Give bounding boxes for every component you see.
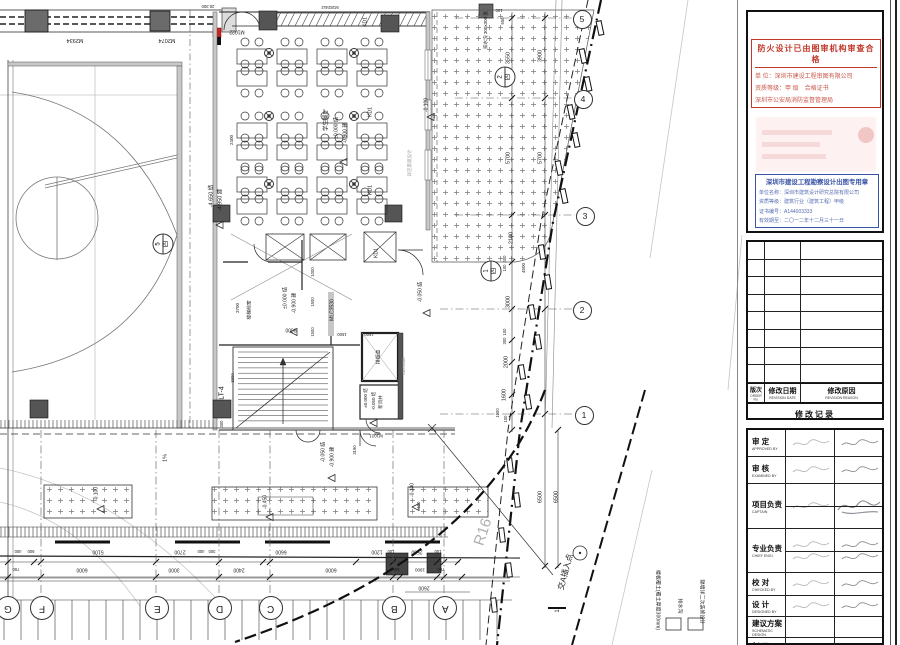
revision-footer-cn: 修改记录 [795,410,835,419]
revision-empty-row [748,295,882,313]
sheet-edge-line [890,0,891,645]
signature-scrawl [840,464,878,476]
signature-sign-cell [834,617,882,637]
faint-lines [0,0,742,645]
signature-scrawl [840,578,878,590]
faint-seal-text [762,142,820,147]
signature-role: 制 图 [748,638,785,645]
shafts [360,333,403,433]
signature-role: 审 核EXAMINED BY [748,457,785,483]
signature-role: 审 定APPROVED BY [748,430,785,456]
signature-role-en: DESIGNED BY [752,610,785,614]
signature-sign-cell [834,457,882,483]
signature-role: 项目负责CAPTAIN [748,484,785,528]
signature-role-cn: 专业负责 [752,543,785,554]
signature-sign-cell [834,529,882,572]
signature-scrawl [791,539,829,551]
paved-plaza [432,10,594,262]
fire-approval-stamp: 防火设计已由图审机构审查合格 单 位：深圳市建设工程审图有限公司 资质等级：甲 … [751,39,881,108]
signature-scrawl [791,551,829,563]
signature-row: 审 核EXAMINED BY [748,457,882,484]
signature-scrawl [791,464,829,476]
signature-scrawl [840,551,878,563]
signature-role-cn: 审 定 [752,436,785,447]
signature-role-cn: 项目负责 [752,499,785,510]
signature-sign-cell [834,430,882,456]
planters [44,485,488,520]
faint-seal-mark [858,127,874,143]
signature-role-cn: 建议方案 [752,618,785,629]
signature-scrawl [840,539,878,551]
signature-scrawl [791,600,829,612]
dining-tables-and-chairs [237,38,387,225]
signature-sign-cell [834,573,882,595]
signature-role: 专业负责CHIEF ENGI. [748,529,785,572]
signature-sign-cell [834,596,882,616]
revision-col-line [800,242,801,383]
revision-col-reason: 修改原因 REVISION REASON [801,384,882,402]
signature-name-cell [785,617,834,637]
signature-row: 制 图 [748,638,882,645]
signature-role: 建议方案SCHEMATIC DESIGN [748,617,785,637]
signature-name-cell [785,529,834,572]
fire-stamp-line: 资质等级：甲 级 合格证书 [755,83,877,92]
signature-role: 设 计DESIGNED BY [748,596,785,616]
drawing-release-stamp: 深圳市建设工程勘察设计出图专用章 单位名称：深圳市建筑设计研究总院有限公司 资质… [755,174,879,228]
signature-row: 专业负责CHIEF ENGI. [748,529,882,573]
blue-stamp-line: 有效期至：二〇一二年十二月三十一日 [759,217,875,224]
stamp-area: 防火设计已由图审机构审查合格 单 位：深圳市建设工程审图有限公司 资质等级：甲 … [746,10,884,233]
cell-divider [835,506,882,507]
revision-header-row: 版次 ORDER No. 修改日期 REVISION DATE 修改原因 REV… [748,383,882,403]
signature-scrawl [791,578,829,590]
revision-empty-row [748,277,882,295]
signature-name-cell [785,484,834,528]
fire-stamp-line: 深圳市公安局消防监督管理局 [755,95,877,104]
signature-name-cell [785,573,834,595]
signature-role-en: APPROVED BY [752,447,785,451]
revision-table: 版次 ORDER No. 修改日期 REVISION DATE 修改原因 REV… [746,240,884,420]
signature-name-cell [785,457,834,483]
revision-col-line [764,242,765,383]
signature-name-cell [785,596,834,616]
faint-seal-text [762,130,832,135]
signature-role-cn: 审 核 [752,463,785,474]
revision-empty-rows [748,242,882,383]
blue-stamp-line: 单位名称：深圳市建筑设计研究总院有限公司 [759,189,875,196]
signature-name-cell [785,430,834,456]
signature-role-en: SCHEMATIC DESIGN [752,629,785,637]
cell-divider [835,551,882,552]
signature-row: 设 计DESIGNED BY [748,596,882,617]
signature-row: 审 定APPROVED BY [748,430,882,457]
revision-empty-row [748,365,882,383]
sheet-edge-line [895,0,897,645]
revision-col-date: 修改日期 REVISION DATE [765,384,801,402]
core-walls [219,240,455,446]
signature-name-cell [785,638,834,645]
signature-role-cn: 设 计 [752,599,785,610]
signature-role-en: CAPTAIN [752,510,785,514]
signature-row: 建议方案SCHEMATIC DESIGN [748,617,882,638]
signature-row: 校 对CHECKED BY [748,573,882,596]
revision-empty-row [748,348,882,366]
revision-empty-row [748,312,882,330]
revision-col-order: 版次 ORDER No. [748,384,765,402]
legend-swatches [666,618,703,630]
signature-role-cn: 校 对 [752,577,785,588]
revision-empty-row [748,330,882,348]
signature-scrawl [840,600,878,612]
signature-scrawl [840,437,878,449]
level-markers [97,114,434,521]
blue-stamp-line: 资质等级：建筑行业（建筑工程）甲级 [759,198,875,205]
architectural-drawing-sheet: { "plan": { "annotations": [ {"t":"M2934… [0,0,900,645]
cell-divider [786,551,834,552]
signature-role: 校 对CHECKED BY [748,573,785,595]
signature-scrawl [791,437,829,449]
signature-role-cn: 制 图 [752,641,785,645]
signature-role-en: CHIEF ENGI. [752,554,785,558]
signature-role-en: EXAMINED BY [752,474,785,478]
revision-footer: 修改记录 REVISION REMARK [748,403,882,420]
walkway-top [0,8,236,32]
cell-divider [786,506,834,507]
faint-seal-text [762,154,826,159]
signature-role-en: CHECKED BY [752,588,785,592]
signature-table: 审 定APPROVED BY审 核EXAMINED BY项目负责CAPTAIN专… [746,428,884,645]
serving-counters [231,232,396,300]
signature-sign-cell [834,484,882,528]
blue-stamp-line: 证书编号：A144003333 [759,208,875,215]
fire-stamp-line: 单 位：深圳市建设工程审图有限公司 [755,71,877,80]
signature-sign-cell [834,638,882,645]
revision-empty-row [748,260,882,278]
revision-empty-row [748,242,882,260]
blue-stamp-title: 深圳市建设工程勘察设计出图专用章 [759,177,875,186]
signature-row: 项目负责CAPTAIN [748,484,882,529]
walls-court [177,10,190,428]
fire-stamp-title: 防火设计已由图审机构审查合格 [755,43,877,65]
bottom-bands [0,420,520,640]
stair-LT4 [233,347,333,430]
sheet-edge-line [737,0,738,645]
